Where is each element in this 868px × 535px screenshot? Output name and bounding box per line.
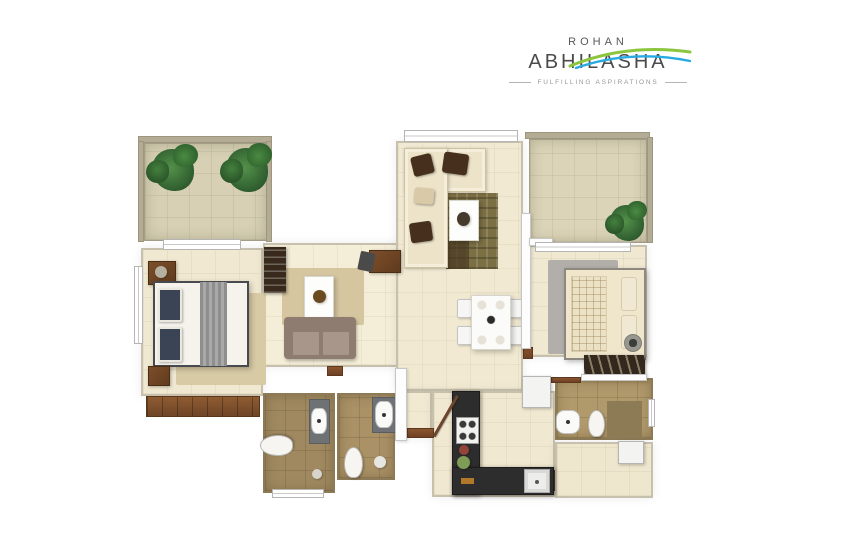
- window-bath3-right: [648, 399, 655, 427]
- bath3-dark-mat: [607, 401, 642, 438]
- window-balcony-left: [163, 239, 241, 250]
- table-lamp: [155, 266, 167, 278]
- plant-balcony-left-2: [226, 148, 268, 192]
- balcony-left-wall-top: [138, 136, 272, 143]
- nightstand-bottom: [148, 366, 170, 386]
- bath1-drain: [312, 469, 322, 479]
- threshold-living-left: [327, 366, 343, 376]
- master-pillow-2: [158, 327, 182, 362]
- dining-chair-1: [457, 299, 472, 318]
- fridge: [522, 376, 551, 408]
- sofa-cushion-3: [409, 221, 434, 244]
- balcony-right-wall-right: [647, 137, 653, 243]
- kitchen-tray: [461, 478, 474, 484]
- master-pillow-1: [158, 288, 182, 322]
- dining-table: [471, 295, 511, 350]
- bath2-basin: [375, 401, 393, 428]
- bed2-pillow-1: [621, 277, 637, 311]
- bath3-basin: [556, 410, 580, 434]
- window-bath1-bottom: [272, 489, 324, 498]
- kitchen-plate-red: [459, 445, 469, 455]
- plant-balcony-left-1: [152, 149, 194, 191]
- balcony-left-wall-left: [138, 141, 144, 242]
- bath3-toilet: [588, 410, 605, 437]
- kitchen-sink: [524, 469, 550, 493]
- floor-plan: [0, 0, 868, 535]
- window-master-left: [134, 266, 143, 344]
- fan-fixture: [624, 334, 642, 352]
- wall-bath3-top: [581, 374, 647, 381]
- bed2-wardrobe: [584, 355, 645, 376]
- floor-plan-page: ROHAN ABHILASHA FULFILLING ASPIRATIONS: [0, 0, 868, 535]
- bath2-toilet: [344, 447, 363, 478]
- wall-passage-left: [395, 368, 407, 441]
- sofa-cushion-2: [442, 151, 470, 175]
- gas-stove: [456, 417, 479, 444]
- sofa-left-seat-2: [322, 331, 350, 356]
- threshold-entry: [407, 428, 434, 438]
- master-throw: [200, 282, 227, 366]
- tv-unit-wardrobe: [264, 247, 286, 293]
- sofa-cushion-beige: [413, 187, 434, 205]
- wall-dining-bed2: [521, 213, 531, 349]
- table-plant-pot: [313, 290, 326, 303]
- table-decor: [457, 212, 470, 226]
- bath1-toilet: [260, 435, 293, 456]
- sofa-left-seat-1: [292, 331, 320, 356]
- balcony-right-wall-top: [525, 132, 650, 139]
- bath2-shower-drain: [374, 456, 386, 468]
- window-living-top: [404, 130, 518, 142]
- dining-chair-2: [457, 326, 472, 345]
- threshold-bath-3: [551, 377, 581, 383]
- kitchen-plate-green: [457, 456, 470, 469]
- master-wardrobe-wood-strip: [146, 396, 260, 417]
- washing-machine: [618, 441, 644, 464]
- plant-balcony-right: [610, 205, 644, 241]
- bed2-blanket: [571, 276, 607, 352]
- bath1-basin: [311, 408, 327, 434]
- window-balcony-right: [535, 242, 631, 252]
